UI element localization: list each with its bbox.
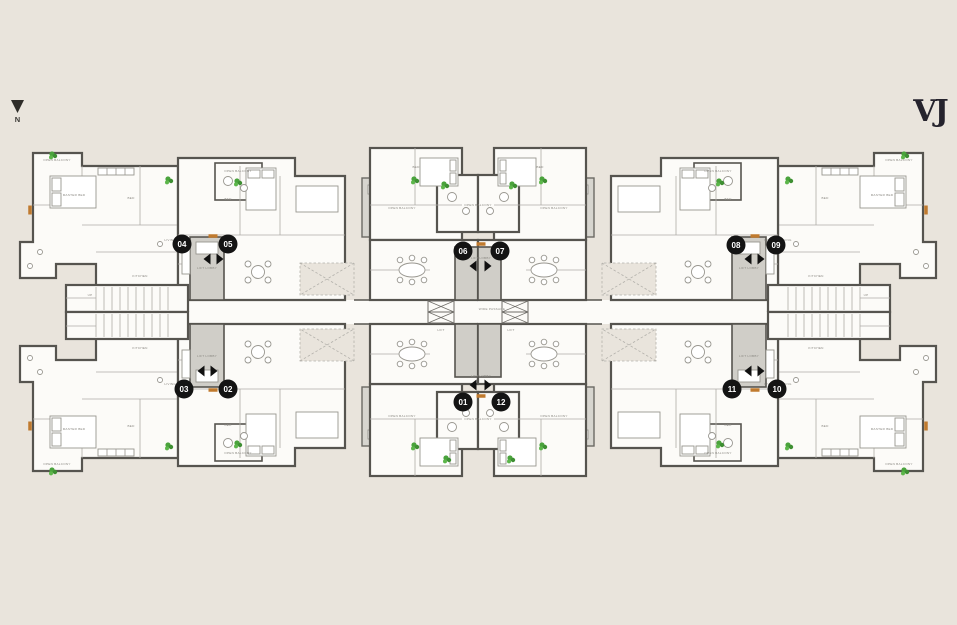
room-label: BED: [127, 424, 135, 428]
plant-icon: [447, 458, 451, 462]
room-label: KITCHEN: [132, 346, 147, 350]
room-label: OPEN BALCONY: [43, 462, 70, 466]
room-label: OPEN BALCONY: [885, 462, 912, 466]
room-label: OPEN BALCONY: [540, 206, 567, 210]
door-marker: [924, 206, 928, 215]
room-label: BED: [224, 197, 232, 201]
plant-icon: [234, 182, 238, 186]
room-label: LIFT LOBBY: [739, 266, 759, 270]
door-marker: [751, 388, 760, 392]
room-label: LIFT LOBBY: [197, 354, 217, 358]
room-label: OPEN BALCONY: [704, 169, 731, 173]
unit-badge-number: 07: [496, 247, 505, 256]
plant-icon: [507, 459, 511, 463]
unit-badge-number: 04: [178, 240, 187, 249]
plant-icon: [234, 444, 238, 448]
room-label: UP: [88, 293, 93, 297]
room-label: OPEN BALCONY: [224, 169, 251, 173]
room-label: WIDE PASSAGE: [479, 307, 506, 311]
room-label: OPEN BALCONY: [704, 451, 731, 455]
plant-icon: [716, 444, 720, 448]
unit-badge-number: 06: [459, 247, 468, 256]
plant-icon: [441, 185, 445, 189]
room-label: OPEN BALCONY: [388, 414, 415, 418]
unit-badge-number: 12: [497, 398, 506, 407]
room-label: UP: [864, 293, 869, 297]
north-indicator: N: [11, 100, 24, 124]
room-label: BED: [821, 424, 829, 428]
room-label: BED: [821, 196, 829, 200]
room-label: KITCHEN: [808, 274, 823, 278]
plant-icon: [785, 180, 789, 184]
room-label: KITCHEN: [808, 346, 823, 350]
room-label: BED: [724, 197, 732, 201]
plant-icon: [238, 443, 242, 447]
plant-icon: [789, 445, 793, 449]
plant-icon: [720, 181, 724, 185]
room-label: MASTER BED: [63, 193, 86, 197]
room-label: BED: [412, 165, 420, 169]
plant-icon: [169, 179, 173, 183]
door-marker: [28, 422, 32, 431]
plant-icon: [165, 446, 169, 450]
door-marker: [209, 234, 218, 238]
north-label: N: [15, 115, 20, 124]
plant-icon: [53, 470, 57, 474]
plant-icon: [509, 185, 513, 189]
room-label: OPEN BALCONY: [885, 158, 912, 162]
unit-badge-number: 01: [459, 398, 468, 407]
plant-icon: [169, 445, 173, 449]
room-label: OPEN BALCONY: [43, 158, 70, 162]
plant-icon: [411, 180, 415, 184]
door-marker: [924, 422, 928, 431]
door-marker: [751, 234, 760, 238]
north-arrow-icon: [11, 100, 24, 113]
unit-badge-number: 05: [224, 240, 233, 249]
unit-badge-number: 02: [224, 385, 233, 394]
plant-icon: [445, 184, 449, 188]
plant-icon: [720, 443, 724, 447]
plant-icon: [511, 458, 515, 462]
room-label: LIFT LOBBY: [197, 266, 217, 270]
door-marker: [477, 242, 486, 246]
plant-icon: [716, 182, 720, 186]
room-label: BED: [724, 423, 732, 427]
room-label: KITCHEN: [132, 274, 147, 278]
room-label: BED: [224, 423, 232, 427]
floorplan-svg: OPEN BALCONYMASTER BEDBEDBEDOPEN BALCONY…: [0, 0, 957, 625]
plant-icon: [789, 179, 793, 183]
room-label: OPEN BALCONY: [464, 417, 491, 421]
unit-badge-number: 11: [728, 385, 737, 394]
plant-icon: [238, 181, 242, 185]
plant-icon: [543, 179, 547, 183]
unit-badge-number: 09: [772, 241, 781, 250]
room-label: OPEN BALCONY: [464, 203, 491, 207]
unit-badge-number: 10: [773, 385, 782, 394]
plant-icon: [543, 445, 547, 449]
door-marker: [477, 394, 486, 398]
room-label: MASTER BED: [871, 427, 894, 431]
plant-icon: [165, 180, 169, 184]
room-label: OPEN BALCONY: [224, 451, 251, 455]
room-label: LIFT LOBBY: [471, 256, 491, 260]
room-label: LIFT LOBBY: [471, 374, 491, 378]
plant-icon: [513, 184, 517, 188]
room-label: OPEN BALCONY: [388, 206, 415, 210]
room-label: MASTER BED: [63, 427, 86, 431]
plant-icon: [49, 471, 53, 475]
plant-icon: [905, 470, 909, 474]
plant-icon: [539, 180, 543, 184]
floorplan-page: OPEN BALCONYMASTER BEDBEDBEDOPEN BALCONY…: [0, 0, 957, 625]
room-label: BED: [536, 165, 544, 169]
plant-icon: [443, 459, 447, 463]
plant-icon: [785, 446, 789, 450]
plant-icon: [901, 471, 905, 475]
room-label: LIFT: [507, 328, 514, 332]
plant-icon: [415, 445, 419, 449]
door-marker: [209, 388, 218, 392]
room-label: MASTER BED: [871, 193, 894, 197]
room-label: LIFT: [437, 328, 444, 332]
door-marker: [28, 206, 32, 215]
plant-icon: [411, 446, 415, 450]
brand-logo: VJ: [912, 94, 948, 129]
room-label: BED: [127, 196, 135, 200]
unit-badge-number: 08: [732, 241, 741, 250]
plant-icon: [539, 446, 543, 450]
unit-badge-number: 03: [180, 385, 189, 394]
room-label: OPEN BALCONY: [540, 414, 567, 418]
room-label: LIFT LOBBY: [739, 354, 759, 358]
plant-icon: [415, 179, 419, 183]
